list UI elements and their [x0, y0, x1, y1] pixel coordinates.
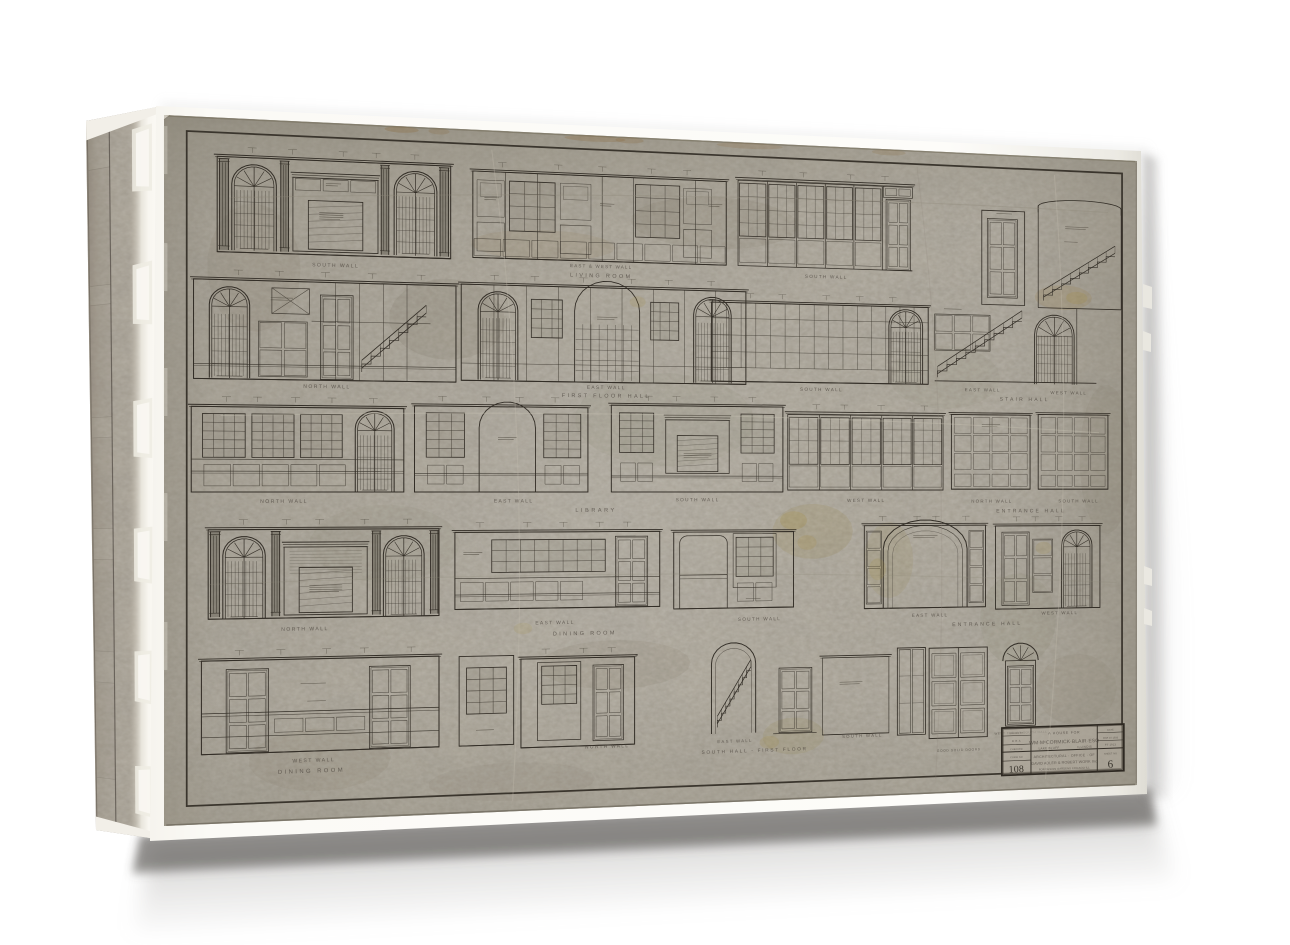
svg-text:SOUTH WALL: SOUTH WALL [676, 497, 720, 502]
svg-text:MAR 10 1926: MAR 10 1926 [1103, 736, 1119, 740]
svg-text:STAIR HALL: STAIR HALL [1000, 397, 1050, 404]
svg-text:EAST WALL: EAST WALL [494, 498, 534, 504]
svg-text:DRAWN BY: DRAWN BY [1009, 732, 1023, 735]
svg-text:WEST WALL: WEST WALL [1041, 610, 1078, 616]
svg-text:ENTRANCE HALL: ENTRANCE HALL [996, 508, 1066, 514]
svg-text:SOUTH WALL: SOUTH WALL [1058, 498, 1098, 503]
svg-text:EAST WALL: EAST WALL [535, 620, 575, 627]
svg-text:R E A: R E A [1012, 739, 1021, 743]
svg-text:DINING ROOM: DINING ROOM [553, 630, 617, 637]
svg-text:DATE: DATE [1107, 728, 1114, 731]
svg-text:108: 108 [1008, 764, 1024, 776]
svg-text:FIRST FLOOR HALL: FIRST FLOOR HALL [562, 393, 651, 400]
svg-text:WEST WALL: WEST WALL [1050, 390, 1087, 395]
svg-text:SOUTH WALL: SOUTH WALL [738, 616, 781, 622]
svg-text:EAST WALL: EAST WALL [965, 387, 1001, 393]
svg-text:LAKE BLUFF: LAKE BLUFF [1038, 746, 1059, 751]
svg-text:EAST WALL: EAST WALL [587, 385, 626, 392]
svg-text:FT 1913: FT 1913 [1105, 742, 1117, 746]
svg-text:6: 6 [1107, 758, 1113, 770]
svg-text:NORTH WALL: NORTH WALL [303, 384, 350, 391]
svg-text:SOUTH WALL: SOUTH WALL [800, 387, 843, 393]
svg-text:ILLINOIS: ILLINOIS [1077, 745, 1092, 750]
svg-text:LIBRARY: LIBRARY [575, 508, 616, 514]
svg-text:NORTH WALL: NORTH WALL [260, 499, 308, 505]
svg-text:EAST WALL: EAST WALL [912, 612, 948, 618]
svg-text:WEST WALL: WEST WALL [847, 498, 885, 503]
svg-text:NORTH WALL: NORTH WALL [281, 626, 329, 633]
svg-text:NORTH WALL: NORTH WALL [971, 499, 1012, 504]
